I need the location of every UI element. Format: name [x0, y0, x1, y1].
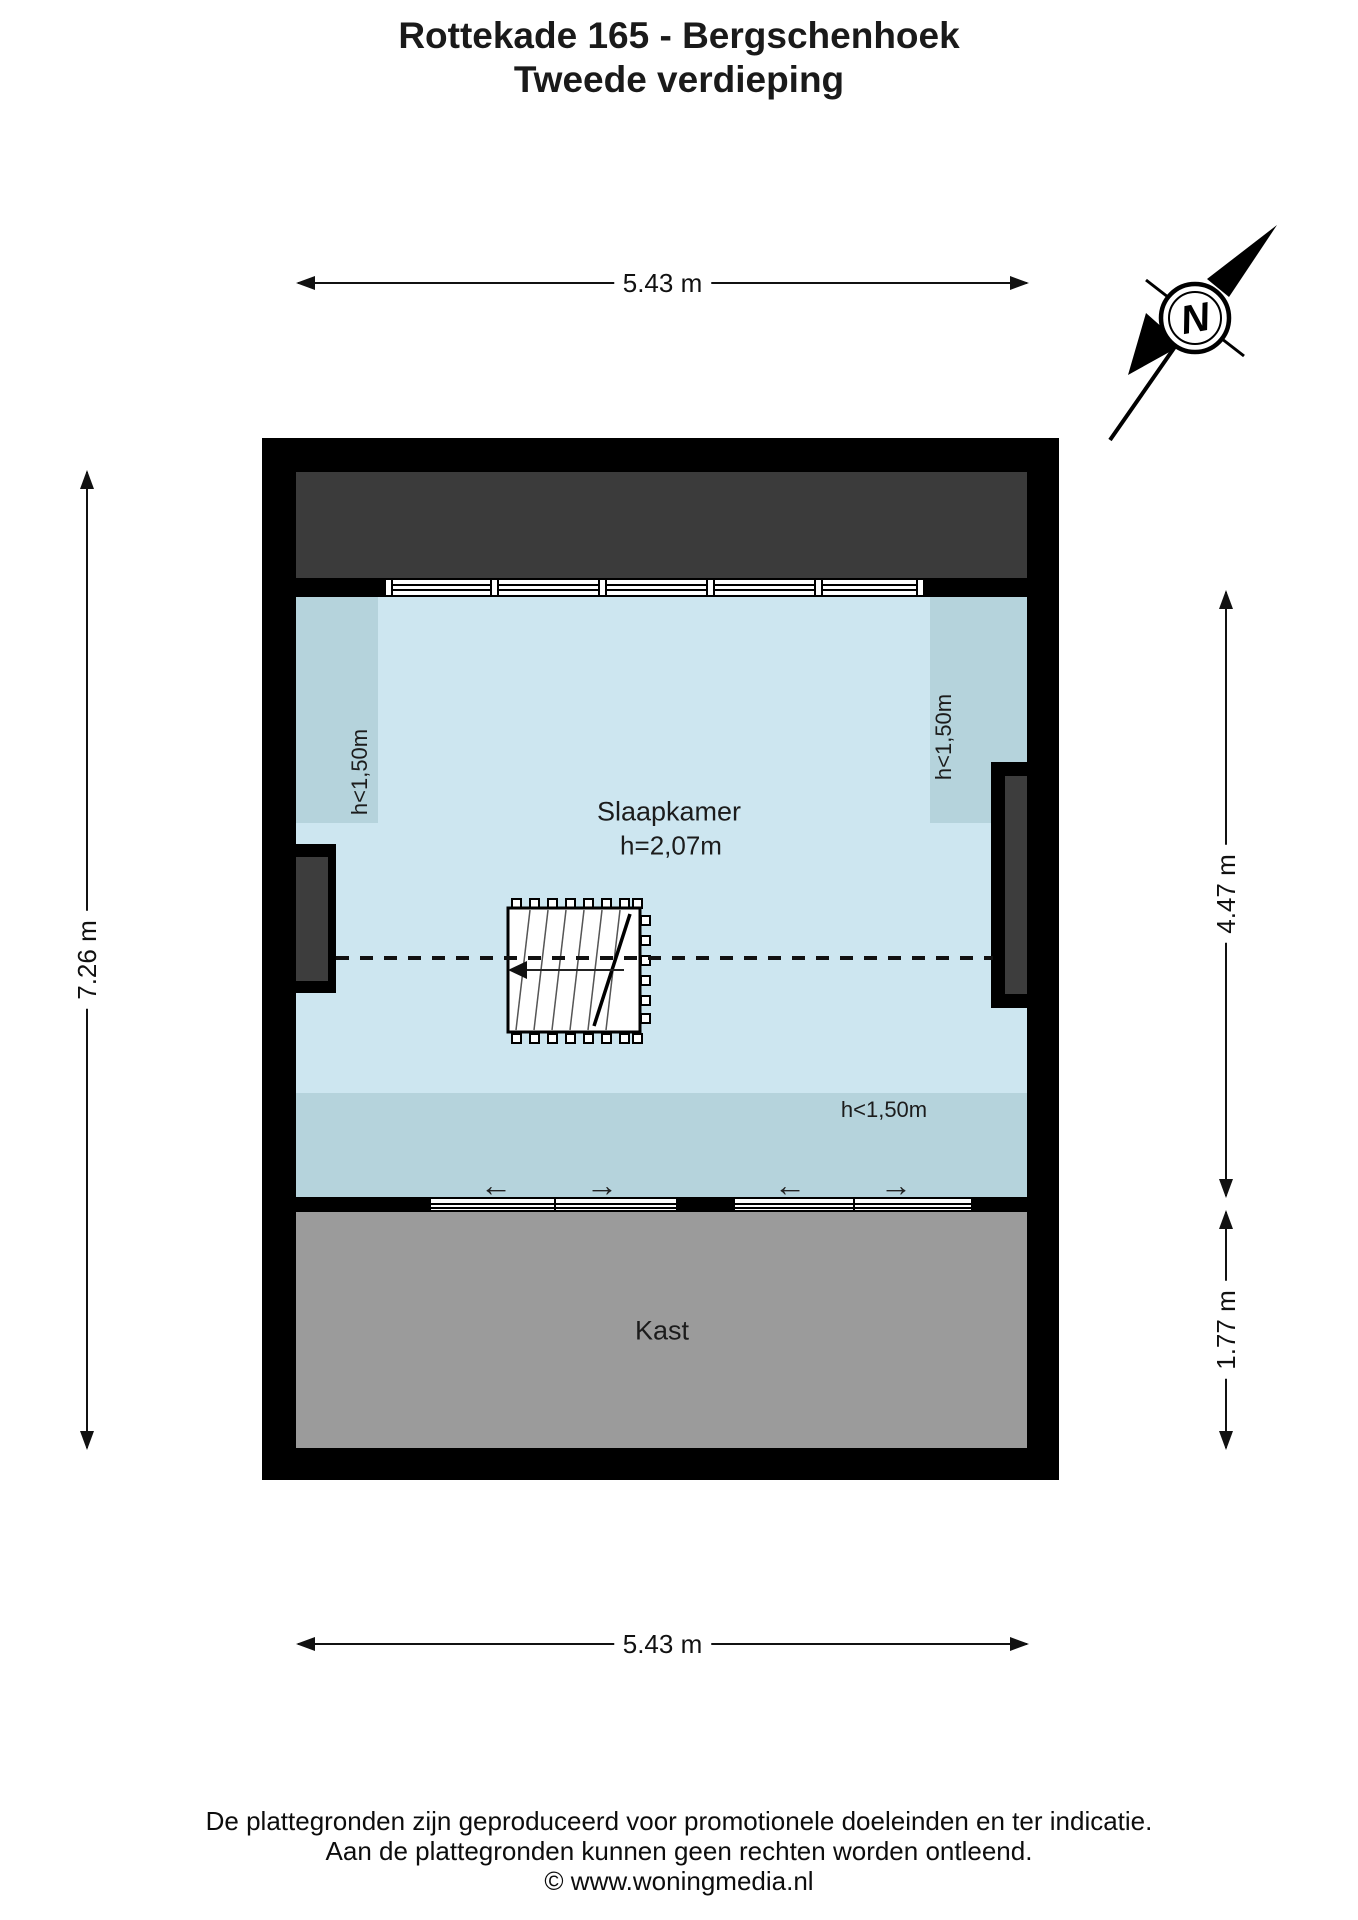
roof-void-area	[296, 472, 1027, 578]
dimension-top-label: 5.43 m	[614, 268, 712, 298]
dimension-top: 5.43 m	[296, 268, 1029, 298]
compass-north-icon: N	[1090, 195, 1300, 455]
arrow-left-icon	[296, 1637, 315, 1651]
arrow-right-icon	[1010, 1637, 1029, 1651]
closet-door-track	[429, 1197, 678, 1212]
track-divider	[853, 1199, 855, 1210]
low-ceiling-label-right: h<1,50m	[931, 694, 957, 780]
footer-disclaimer: De plattegronden zijn geproduceerd voor …	[0, 1806, 1358, 1896]
niche-right	[1005, 776, 1027, 994]
arrow-left-icon	[296, 276, 315, 290]
niche-left	[296, 857, 328, 981]
arrow-right-icon	[1010, 276, 1029, 290]
window-glazing-line	[386, 589, 923, 591]
arrow-up-icon	[80, 470, 94, 489]
dimension-right-upper-label: 4.47 m	[1212, 845, 1240, 943]
low-ceiling-label-left: h<1,50m	[347, 729, 373, 815]
wall-stub	[296, 1197, 429, 1212]
page-title: Rottekade 165 - Bergschenhoek Tweede ver…	[0, 14, 1358, 103]
dimension-bottom-label: 5.43 m	[614, 1629, 712, 1659]
window-mullion	[384, 578, 393, 597]
dimension-right-lower: 1.77 m	[1213, 1210, 1239, 1450]
footer-line-2: Aan de plattegronden kunnen geen rechten…	[0, 1836, 1358, 1866]
bedroom-ceiling-height-label: h=2,07m	[620, 831, 722, 862]
window-mullion	[916, 578, 925, 597]
dimension-right-lower-label: 1.77 m	[1212, 1281, 1240, 1379]
window-mullion	[598, 578, 607, 597]
wall-stub	[296, 578, 384, 597]
window-glazing-line	[386, 584, 923, 586]
dimension-left: 7.26 m	[74, 470, 100, 1450]
stair-balusters-bottom	[512, 1034, 642, 1043]
footer-line-1: De plattegronden zijn geproduceerd voor …	[0, 1806, 1358, 1836]
dormer-window	[384, 578, 925, 597]
wall-stub	[973, 1197, 1027, 1212]
room-label-closet: Kast	[635, 1316, 689, 1347]
room-label-bedroom: Slaapkamer	[597, 797, 741, 828]
dimension-left-label: 7.26 m	[73, 911, 101, 1009]
window-mullion	[706, 578, 715, 597]
stair-balusters-right	[641, 916, 650, 1023]
arrow-up-icon	[1219, 590, 1233, 609]
page-title-address: Rottekade 165 - Bergschenhoek	[0, 14, 1358, 58]
arrow-down-icon	[80, 1431, 94, 1450]
slide-arrow-right-icon: →	[880, 1169, 912, 1201]
arrow-up-icon	[1219, 1210, 1233, 1229]
slide-arrow-left-icon: ←	[480, 1169, 512, 1201]
arrow-down-icon	[1219, 1179, 1233, 1198]
track-divider	[554, 1199, 556, 1210]
ridge-dashed-line	[336, 956, 993, 960]
low-ceiling-label-bottom: h<1,50m	[841, 1097, 927, 1123]
arrow-down-icon	[1219, 1431, 1233, 1450]
wall-stub	[925, 578, 1027, 597]
floorplan-page: Rottekade 165 - Bergschenhoek Tweede ver…	[0, 0, 1358, 1920]
wall-stub	[678, 1197, 733, 1212]
footer-copyright: © www.woningmedia.nl	[0, 1866, 1358, 1896]
closet-door-track	[733, 1197, 973, 1212]
window-mullion	[490, 578, 499, 597]
staircase	[500, 898, 652, 1044]
slide-arrow-right-icon: →	[586, 1169, 618, 1201]
page-title-floor: Tweede verdieping	[0, 58, 1358, 102]
dimension-bottom: 5.43 m	[296, 1629, 1029, 1659]
dimension-right-upper: 4.47 m	[1213, 590, 1239, 1198]
slide-arrow-left-icon: ←	[774, 1169, 806, 1201]
window-mullion	[814, 578, 823, 597]
